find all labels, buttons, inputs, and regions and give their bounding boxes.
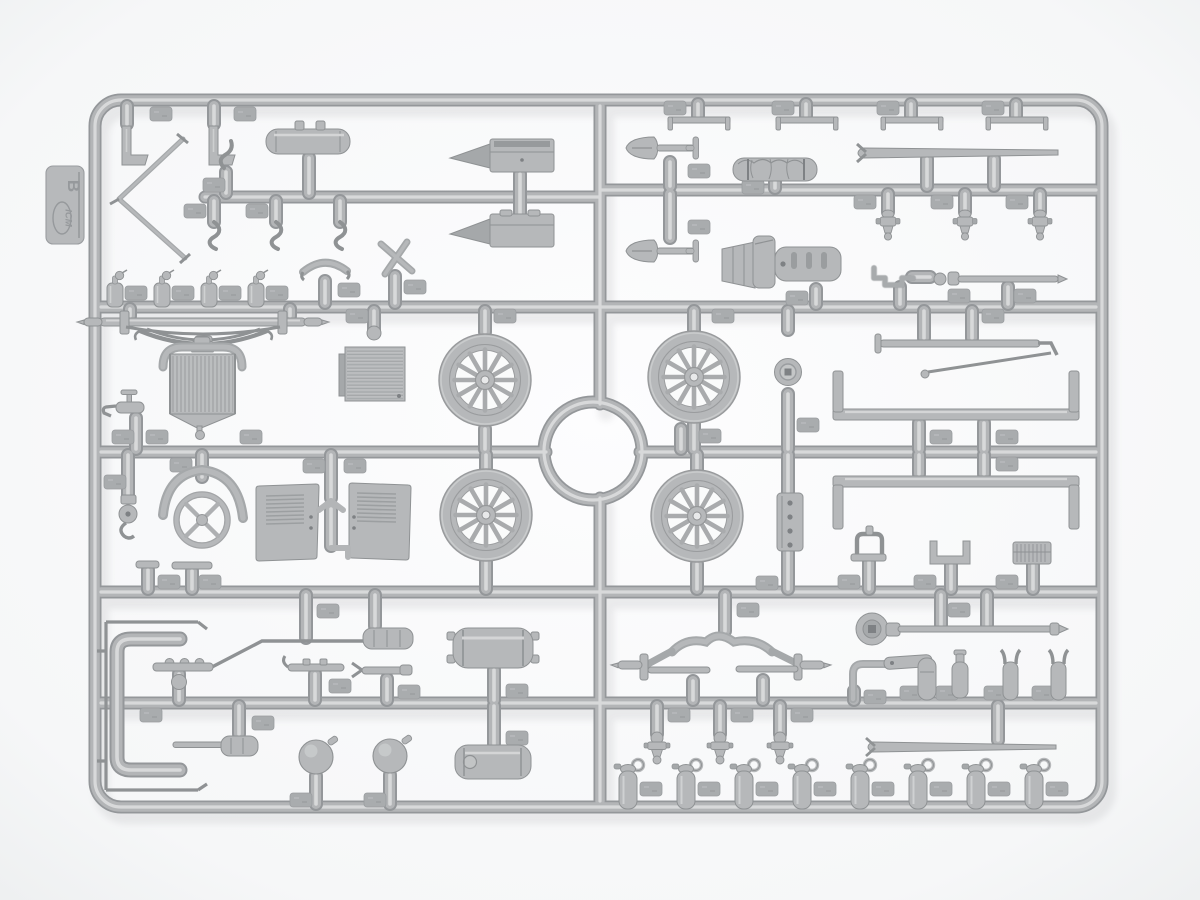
brand-logo-text: ICM bbox=[63, 209, 74, 228]
storage-tank bbox=[455, 745, 531, 779]
sprue-letter: B bbox=[64, 180, 83, 192]
t-bar-parts bbox=[136, 561, 212, 569]
spoked-wheel bbox=[439, 334, 531, 426]
horn bbox=[775, 359, 802, 386]
sprue-photo: B ICM bbox=[0, 0, 1200, 900]
bolted-plate bbox=[777, 493, 803, 551]
small-cylinder bbox=[918, 658, 936, 700]
spoked-wheel bbox=[440, 469, 532, 561]
sprue-svg: B ICM bbox=[0, 0, 1200, 900]
spoked-wheel bbox=[648, 331, 740, 423]
fuel-tank bbox=[447, 628, 539, 668]
sprue-id-tab: B ICM bbox=[46, 166, 84, 244]
spoked-wheel bbox=[651, 470, 743, 562]
rolled-tarp bbox=[733, 158, 817, 181]
grille-block bbox=[1013, 542, 1051, 564]
